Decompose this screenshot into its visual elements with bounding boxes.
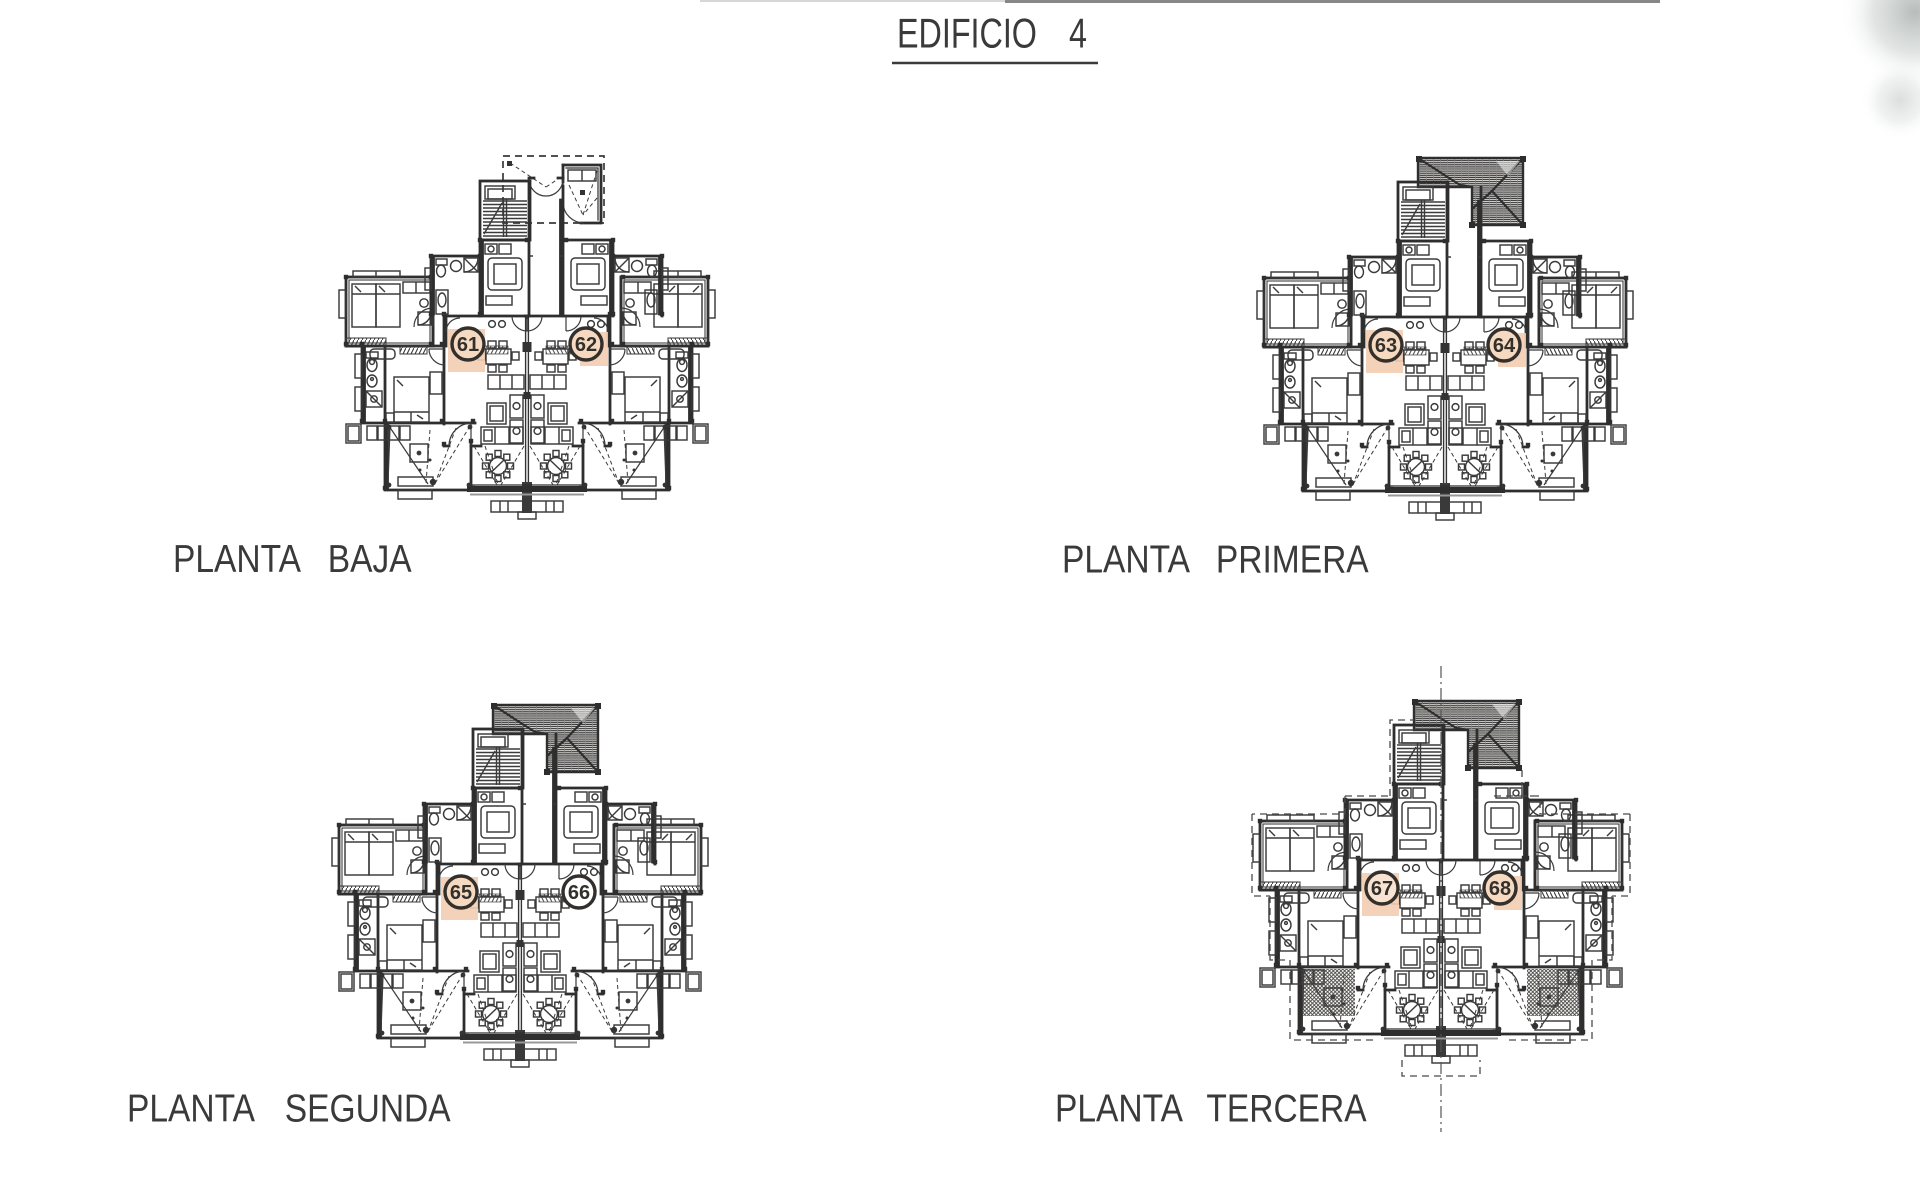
svg-text:61: 61 (457, 334, 479, 356)
svg-text:68: 68 (1489, 878, 1511, 900)
svg-text:EDIFICIO: EDIFICIO (897, 9, 1037, 56)
svg-text:PLANTA: PLANTA (1055, 1086, 1184, 1130)
svg-text:PLANTA: PLANTA (173, 537, 302, 581)
svg-text:62: 62 (575, 334, 597, 356)
svg-text:66: 66 (568, 882, 590, 904)
svg-text:BAJA: BAJA (328, 537, 413, 581)
svg-text:PLANTA: PLANTA (1062, 537, 1191, 581)
svg-text:PRIMERA: PRIMERA (1216, 537, 1369, 581)
svg-text:TERCERA: TERCERA (1206, 1086, 1367, 1130)
svg-text:67: 67 (1371, 878, 1393, 900)
svg-text:PLANTA: PLANTA (127, 1086, 256, 1130)
svg-text:63: 63 (1375, 335, 1397, 357)
svg-text:64: 64 (1493, 335, 1516, 357)
svg-text:4: 4 (1069, 9, 1087, 56)
svg-text:65: 65 (450, 882, 472, 904)
svg-text:SEGUNDA: SEGUNDA (285, 1086, 451, 1130)
